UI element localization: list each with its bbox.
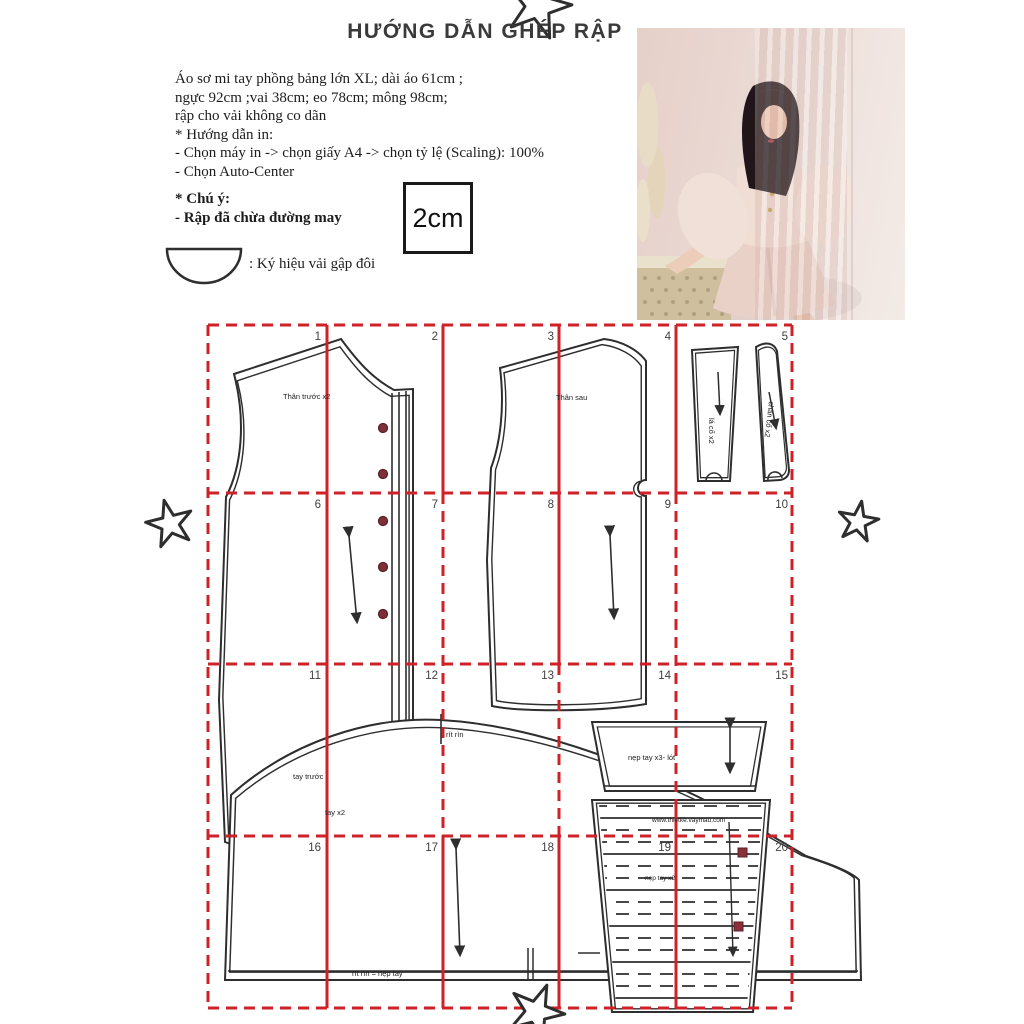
sleeve-cap-mark-label: rít rìn — [446, 730, 464, 739]
sleeve-label: tay x2 — [325, 808, 345, 817]
back-bodice-label: Thân sau — [556, 393, 587, 402]
pampas-grass — [637, 68, 675, 258]
collar-leaf-label: lá cổ x2 — [707, 418, 716, 444]
grid-cell-number: 11 — [291, 670, 321, 682]
curtain — [755, 28, 847, 320]
grid-cell-number: 8 — [524, 499, 554, 511]
garment-info-block: Áo sơ mi tay phồng bảng lớn XL; dài áo 6… — [175, 70, 605, 181]
pattern-instruction-sheet: HƯỚNG DẪN GHÉP RẬP Áo sơ mi tay phồng bả… — [0, 0, 1024, 1024]
star-icon — [835, 498, 881, 543]
grid-cell-number: 12 — [408, 670, 438, 682]
sleeve-front-label: tay trước — [293, 772, 323, 781]
wall-seam — [851, 28, 853, 320]
grid-cell-number: 18 — [524, 842, 554, 854]
grid-cell-number: 4 — [641, 331, 671, 343]
print-instructions-heading: * Hướng dẫn in: — [175, 126, 605, 145]
info-line: rập cho vải không co dãn — [175, 107, 605, 126]
grid-cell-number: 13 — [524, 670, 554, 682]
star-icon — [142, 495, 198, 549]
front-bodice-label: Thân trước x2 — [283, 392, 330, 401]
model-photo — [637, 28, 905, 320]
grid-cell-number: 6 — [291, 499, 321, 511]
info-line: Áo sơ mi tay phồng bảng lớn XL; dài áo 6… — [175, 70, 605, 89]
star-icon — [502, 975, 572, 1024]
pattern-pieces — [167, 249, 861, 1012]
grid-cell-number: 2 — [408, 331, 438, 343]
grid-cell-number: 19 — [641, 842, 671, 854]
grid-cell-number: 17 — [408, 842, 438, 854]
print-step: - Chọn Auto-Center — [175, 163, 605, 182]
grid-cell-number: 5 — [758, 331, 788, 343]
grid-cell-number: 15 — [758, 670, 788, 682]
cuff-label: nẹp tay x2 — [645, 875, 675, 882]
grid-cell-number: 10 — [758, 499, 788, 511]
grid-cell-number: 9 — [641, 499, 671, 511]
fold-symbol-label: : Ký hiệu vải gập đôi — [249, 256, 375, 273]
print-step: - Chọn máy in -> chọn giấy A4 -> chọn tỷ… — [175, 144, 605, 163]
grid-cell-number: 16 — [291, 842, 321, 854]
grid-cell-number: 1 — [291, 331, 321, 343]
watermark-text: www.thietke.vaymau.com — [652, 817, 725, 824]
fold-symbol — [167, 249, 241, 283]
grid-cell-number: 7 — [408, 499, 438, 511]
sleeve-hem-mark-label: rít rìn = nẹp tay — [352, 969, 403, 978]
cuff-hatched-piece — [592, 800, 770, 1012]
grid-cell-number: 20 — [758, 842, 788, 854]
scale-box: 2cm — [403, 182, 473, 254]
cuff-facing-label: nẹp tay x3- lót — [628, 753, 675, 762]
grid-cell-number: 14 — [641, 670, 671, 682]
grid-cell-number: 3 — [524, 331, 554, 343]
info-line: ngực 92cm ;vai 38cm; eo 78cm; mông 98cm; — [175, 89, 605, 108]
cuff-facing-piece — [592, 722, 766, 791]
page-title: HƯỚNG DẪN GHÉP RẬP — [250, 20, 720, 44]
